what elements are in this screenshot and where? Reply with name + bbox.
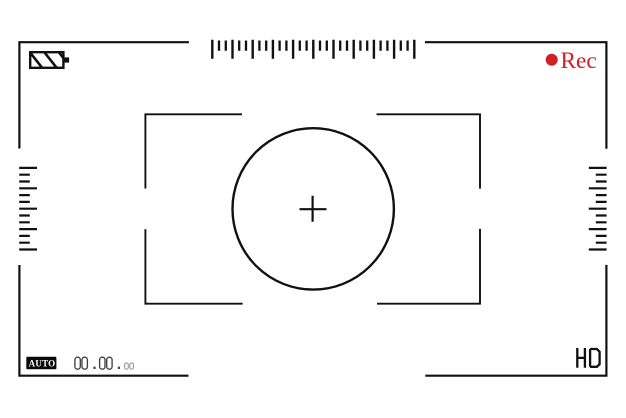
svg-text:AUTO: AUTO	[29, 359, 56, 369]
svg-text:Rec: Rec	[561, 48, 597, 74]
